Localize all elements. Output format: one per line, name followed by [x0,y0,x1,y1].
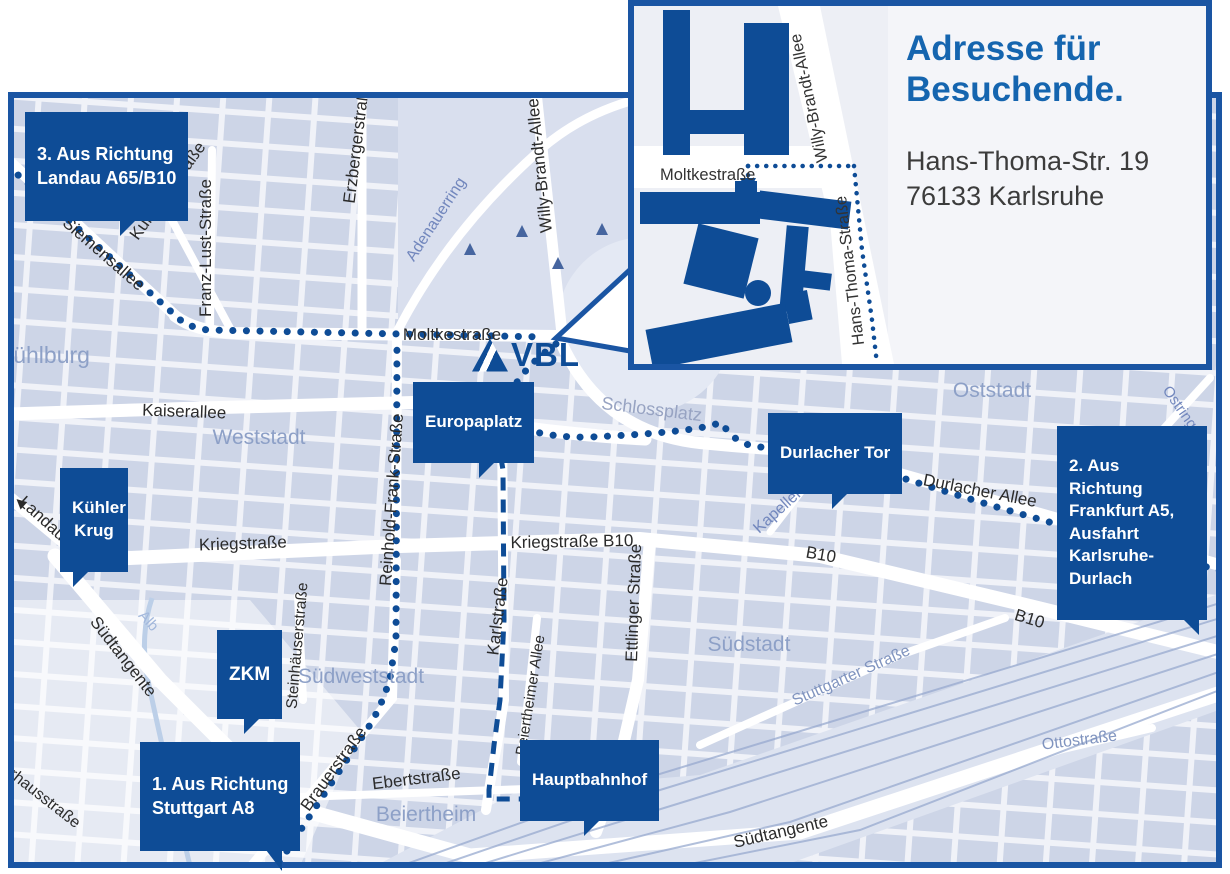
direction-map-page: Mühlburg Weststadt Oststadt Südstadt Süd… [0,0,1230,874]
street-kriegstrasse: Kriegstraße [199,532,287,554]
callout-tail [244,718,260,734]
callout-kuehler-krug: Kühler Krug [60,468,128,572]
callout-tail [120,220,136,236]
callout-tail [832,493,848,509]
callout-europaplatz-label: Europaplatz [425,412,522,431]
callout-europaplatz: Europaplatz [413,382,534,463]
inset-title: Adresse für Besuchende. [906,28,1206,111]
street-kriegstrasse-b10: Kriegstraße B10 [510,531,633,552]
street-franz-lust-strasse: Franz-Lust-Straße [196,179,215,317]
callout-stuttgart: 1. Aus Richtung Stuttgart A8 [140,742,300,851]
vbl-triangle-icon [472,339,508,372]
callout-tail [1183,619,1199,635]
building-dome [745,280,771,306]
callout-zkm-label: ZKM [229,664,270,685]
inset-street-moltkestrasse: Moltkestraße [660,166,755,184]
callout-stuttgart-label: 1. Aus Richtung Stuttgart A8 [152,774,288,818]
building-h-bar [663,110,789,134]
district-suedweststadt: Südweststadt [298,665,424,688]
callout-tail [584,820,600,836]
callout-hauptbahnhof: Hauptbahnhof [520,740,659,821]
inset-address-line1: Hans-Thoma-Str. 19 [906,144,1149,179]
inset-address-panel: Moltkestraße Willy-Brandt-Allee Hans-Tho… [628,0,1212,370]
street-kaiserallee: Kaiserallee [142,401,227,423]
district-muehlburg: Mühlburg [0,342,90,368]
district-weststadt: Weststadt [213,426,306,449]
callout-tail [479,462,495,478]
callout-hauptbahnhof-label: Hauptbahnhof [532,770,647,789]
callout-kuehler-krug-label: Kühler Krug [72,498,126,539]
vbl-logo: VBL [472,336,580,374]
district-oststadt: Oststadt [953,379,1031,402]
building-long-bar [640,192,760,224]
callout-landau-label: 3. Aus Richtung Landau A65/B10 [37,144,176,188]
inset-address-line2: 76133 Karlsruhe [906,179,1149,214]
building-h-right [744,23,789,155]
callout-durlacher-tor: Durlacher Tor [768,413,902,494]
vbl-logo-text: VBL [511,336,580,374]
callout-frankfurt-label: 2. Aus Richtung Frankfurt A5, Ausfahrt K… [1069,456,1174,587]
building-foot [802,270,832,290]
callout-tail [266,850,282,871]
callout-tail [73,571,89,587]
callout-durlacher-tor-label: Durlacher Tor [780,443,890,462]
callout-frankfurt: 2. Aus Richtung Frankfurt A5, Ausfahrt K… [1057,426,1207,620]
callout-zkm: ZKM [217,630,282,719]
district-suedstadt: Südstadt [708,633,791,656]
callout-landau: 3. Aus Richtung Landau A65/B10 [25,112,188,221]
inset-address: Hans-Thoma-Str. 19 76133 Karlsruhe [906,144,1149,214]
district-beiertheim: Beiertheim [376,803,476,826]
